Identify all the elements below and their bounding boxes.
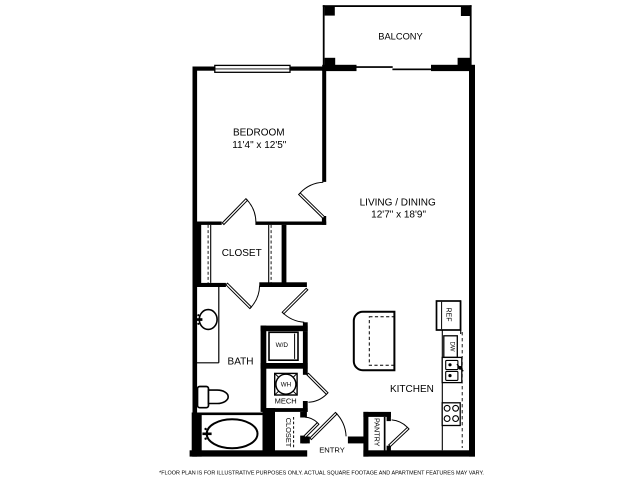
- svg-text:MECH: MECH: [275, 396, 297, 405]
- svg-text:CLOSET: CLOSET: [284, 418, 293, 448]
- svg-text:BATH: BATH: [228, 356, 254, 367]
- svg-text:W/D: W/D: [276, 342, 289, 349]
- svg-text:12'7" x 18'9": 12'7" x 18'9": [371, 209, 426, 220]
- svg-text:DW: DW: [449, 342, 455, 352]
- svg-text:11'4" x 12'5": 11'4" x 12'5": [232, 140, 287, 151]
- svg-text:KITCHEN: KITCHEN: [390, 384, 434, 395]
- svg-text:BEDROOM: BEDROOM: [233, 128, 285, 139]
- svg-text:LIVING / DINING: LIVING / DINING: [360, 197, 436, 208]
- svg-text:PANTRY: PANTRY: [372, 418, 381, 447]
- svg-text:WH: WH: [281, 382, 291, 389]
- svg-text:ENTRY: ENTRY: [319, 446, 345, 455]
- svg-text:BALCONY: BALCONY: [378, 32, 422, 42]
- svg-text:REF: REF: [444, 308, 451, 322]
- svg-text:CLOSET: CLOSET: [222, 248, 262, 259]
- svg-text:*FLOOR PLAN IS FOR ILLUSTRATIV: *FLOOR PLAN IS FOR ILLUSTRATIVE PURPOSES…: [159, 470, 484, 476]
